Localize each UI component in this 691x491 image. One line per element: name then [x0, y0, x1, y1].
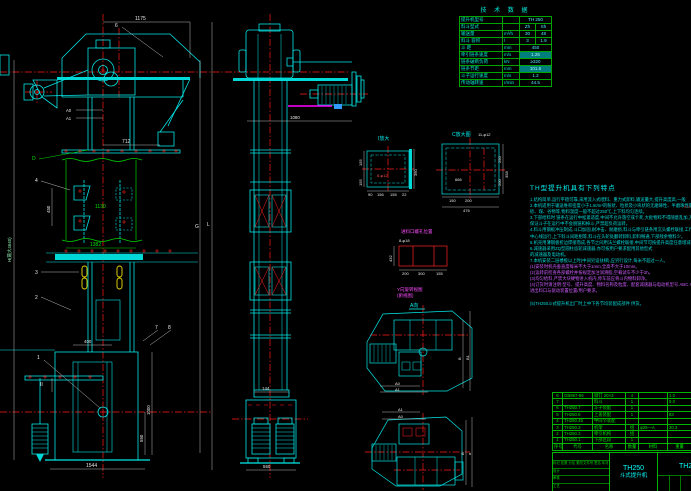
note-line: 进出料口与驱动装置位置/用户要求。	[530, 288, 691, 294]
balloon-1: 1	[37, 355, 40, 361]
tech-unit	[503, 24, 520, 31]
tech-unit: m/s	[503, 52, 520, 59]
plan-view-a	[367, 309, 472, 392]
dim-mid-1130: 1130	[95, 204, 106, 210]
detail-inlet-dim: 432	[388, 255, 393, 262]
table-row: 输送量 m³/h 30 48	[460, 31, 552, 38]
table-row: 料斗 容积 l 3 1.9	[460, 38, 552, 45]
detail-i-dim: 90	[368, 192, 373, 197]
dim-side-550: 550	[263, 464, 271, 469]
table-row: 传动轴转速 r/min 44.5	[460, 80, 552, 87]
note-line: (5)TH250斗式提升机出厂时上中下各节均装配成部件 供货。	[530, 301, 691, 307]
table-row: 牵引链条速度 m/s 1.25	[460, 52, 552, 59]
plan-b-dim: A0	[398, 414, 404, 419]
detail-c-dim: 476	[463, 208, 470, 213]
balloon-4: 4	[35, 178, 38, 184]
tech-value: TH 250	[520, 17, 552, 24]
dim-boot-height: 1000	[146, 405, 151, 415]
detail-i-bolt-callout: 8-φ12	[377, 173, 388, 178]
title-block: 标记 处数 分区 更改文件号 签名 年月日 设计 审核 工艺 TH250 斗式提…	[552, 452, 691, 491]
model-number: TH250	[610, 465, 657, 473]
table-row: 链条破断负荷 kN ≥320	[460, 59, 552, 66]
balloon-3: 3	[35, 270, 38, 276]
bom-header: 数量	[626, 444, 639, 450]
dim-side-144: 144	[262, 386, 270, 391]
balloon-2: 2	[35, 295, 38, 301]
plan-a-label-2: (俯视图)	[397, 292, 414, 299]
title-block-center: TH250 斗式提升机	[610, 453, 658, 491]
tech-value: 48	[536, 31, 552, 38]
table-header-row: 序号 代号 名称 数量 材料 重量	[553, 444, 691, 450]
detail-c-dim: 200	[497, 179, 502, 186]
plan-a-dim: A1	[395, 387, 401, 392]
tech-label: 斗 距	[460, 45, 503, 52]
tech-value: ≥320	[520, 59, 552, 66]
title-block-grid	[658, 475, 691, 491]
detail-view-c-labels: C放大图 11-φ12 666 250 200 358 150 200 476	[449, 131, 509, 213]
cad-canvas: 1175 712 A0 A1 G L H(最大4640) 450 1130 13…	[0, 0, 691, 491]
product-name: 斗式提升机	[610, 473, 657, 480]
detail-c-title: C放大图	[452, 131, 471, 138]
detail-i-dim: 155	[358, 159, 363, 166]
dim-a1: A1	[66, 116, 72, 121]
dim-boot-top: 400	[84, 339, 92, 344]
tech-value: 1.9	[536, 38, 552, 45]
tech-value: 30	[520, 31, 536, 38]
detail-i-dim: 22	[402, 192, 407, 197]
front-view-mid-section	[39, 150, 142, 248]
signature-craft: 工艺	[553, 484, 609, 491]
tech-table-grid: 提升机型号 TH 250 料斗型式 Zh Sh 输送量 m³/h 30 48 料…	[459, 16, 552, 87]
dim-pitch: 450	[46, 205, 51, 213]
notes-block: TH型提升机具有下列特点 1.结构简单,运行平稳可靠,采用流入式喂料、重力式卸料…	[530, 182, 691, 390]
balloon-8: 8	[168, 325, 171, 331]
note-line: 中心线运行,上下料斗间距相等,料斗在头轮处翻转卸料,卸料畅通,下部残余物料少。	[530, 234, 691, 240]
table-row: 链条节距 mm 101.6	[460, 66, 552, 73]
mark-d-label: D	[32, 156, 36, 162]
dim-a0: A0	[66, 108, 72, 113]
detail-inlet-holes	[394, 246, 447, 270]
dim-top-width: 1175	[135, 16, 146, 22]
bom-header: 材料	[639, 444, 668, 450]
tech-value: 3	[520, 38, 536, 45]
side-view	[233, 24, 364, 463]
table-row: 提升机型号 TH 250	[460, 17, 552, 24]
tech-value: 1.2	[520, 73, 552, 80]
tech-label: 输送量	[460, 31, 503, 38]
parts-list: 8 GB867-86 铆钉 20×3 4 1.0 7 料斗 1 9.0 6 TH…	[552, 392, 691, 451]
plan-a-label-1: Y向旋转视图	[397, 286, 423, 293]
detail-inlet-bolt-callout: 8-φ18	[399, 238, 410, 243]
tech-value: 1.25	[520, 52, 552, 59]
plan-view-b-labels: A1 A0 B a	[398, 407, 472, 455]
dim-total-height: H(最大4640)	[6, 237, 13, 262]
dim-chute: 712	[122, 139, 131, 145]
tech-table-title: 技 术 数 据	[459, 5, 552, 14]
signature-design: 设计	[553, 469, 609, 477]
tech-label: 牵引链条速度	[460, 52, 503, 59]
grid-line	[669, 476, 670, 491]
detail-inlet-dim: 200	[402, 271, 409, 276]
table-row: 斗 距 mm 450	[460, 45, 552, 52]
tech-value: Sh	[536, 24, 552, 31]
note-line: 5.机壳用薄钢板折边焊接而成,各节之间用法兰螺栓联接,中间节可按提升高度任意增减…	[530, 240, 691, 246]
detail-i-dim: 156	[377, 192, 384, 197]
bom-header: 名称	[593, 444, 626, 450]
tech-unit: mm	[503, 45, 520, 52]
section-ii-label: II	[40, 382, 43, 388]
tech-data-table: 技 术 数 据 提升机型号 TH 250 料斗型式 Zh Sh 输送量 m³/h…	[459, 5, 552, 87]
detail-inlet-dim: 155	[436, 271, 443, 276]
detail-c-dim: 358	[504, 171, 509, 178]
dim-mid-1382: 1382	[90, 242, 101, 248]
dimension-labels: 1175 712 A0 A1 G L H(最大4640) 450 1130 13…	[6, 16, 300, 469]
grid-line	[680, 476, 681, 491]
tech-label: 链条节距	[460, 66, 503, 73]
tech-label: 提升机型号	[460, 17, 503, 24]
parts-list-grid: 8 GB867-86 铆钉 20×3 4 1.0 7 料斗 1 9.0 6 TH…	[552, 392, 691, 451]
dim-boot-mid: 550	[139, 434, 144, 442]
balloon-6: 6	[115, 23, 118, 29]
tech-unit: m³/h	[503, 31, 520, 38]
note-line: 4.料斗用钢板冲压制成,斗口加固,耐冲击、耐磨损,料斗与牵引链条用沉头螺栓联接,…	[530, 227, 691, 233]
tech-value: 101.6	[520, 66, 552, 73]
detail-i-title: I放大	[378, 135, 389, 142]
detail-i-dim: 155	[358, 179, 363, 186]
tech-label: 料斗型式	[460, 24, 503, 31]
dim-base-width: 1544	[86, 463, 97, 469]
tech-unit: r/min	[503, 80, 520, 87]
detail-i-dim: 155	[390, 192, 397, 197]
plan-b-dim: B	[460, 452, 465, 455]
revision-header-row: 标记 处数 分区 更改文件号 签名 年月日	[553, 461, 609, 469]
detail-c-dim: 150	[449, 198, 456, 203]
tech-value: 450	[520, 45, 552, 52]
tech-unit: l	[503, 38, 520, 45]
title-block-right: TH2	[658, 453, 691, 491]
tech-unit: m/s	[503, 73, 520, 80]
plan-a-dim: B1	[465, 354, 470, 360]
tech-unit	[503, 17, 520, 24]
detail-inlet-labels: 进料口螺孔位置 8-φ18 432 200 300 155	[388, 228, 443, 276]
tech-unit: mm	[503, 66, 520, 73]
dim-side-1080: 1080	[290, 115, 300, 120]
plan-a-dim: A0	[395, 381, 401, 386]
notes-title: TH型提升机具有下列特点	[530, 182, 691, 192]
table-row: 斗子运行速度 m/s 1.2	[460, 73, 552, 80]
plan-b-dim: A1	[398, 407, 404, 412]
bom-header: 代号	[563, 444, 593, 450]
tech-label: 传动轴转速	[460, 80, 503, 87]
tech-label: 料斗 容积	[460, 38, 503, 45]
dim-l: L	[207, 222, 210, 228]
detail-c-dim: 200	[465, 198, 472, 203]
title-block-revision-zone: 标记 处数 分区 更改文件号 签名 年月日 设计 审核 工艺	[553, 453, 610, 491]
plan-a-dim: B	[457, 357, 462, 360]
detail-inlet-dim: 300	[418, 271, 425, 276]
detail-c-dim: 250	[497, 156, 502, 163]
table-row: 料斗型式 Zh Sh	[460, 24, 552, 31]
bom-header: 序号	[553, 444, 563, 450]
detail-i-dim: 360	[413, 169, 418, 176]
plan-a-view-mark: A向	[410, 302, 418, 309]
dim-g: G	[195, 224, 199, 230]
tech-label: 链条破断负荷	[460, 59, 503, 66]
plan-view-b	[372, 412, 472, 487]
detail-inlet-title: 进料口螺孔位置	[401, 228, 433, 235]
plan-b-dim: a	[467, 452, 472, 455]
signature-check: 审核	[553, 476, 609, 484]
bom-header: 重量	[668, 444, 691, 450]
side-view-door-crosses	[255, 195, 286, 295]
detail-c-dim: 666	[455, 177, 462, 182]
detail-c-bolt-callout: 11-φ12	[478, 132, 491, 137]
tech-value: Zh	[520, 24, 536, 31]
detail-flange-i	[364, 149, 414, 191]
tech-label: 斗子运行速度	[460, 73, 503, 80]
drawing-number: TH2	[679, 463, 691, 470]
balloon-7: 7	[155, 325, 158, 331]
tech-unit: kN	[503, 59, 520, 66]
revision-empty-row	[553, 453, 609, 461]
tech-value: 44.5	[520, 80, 552, 87]
